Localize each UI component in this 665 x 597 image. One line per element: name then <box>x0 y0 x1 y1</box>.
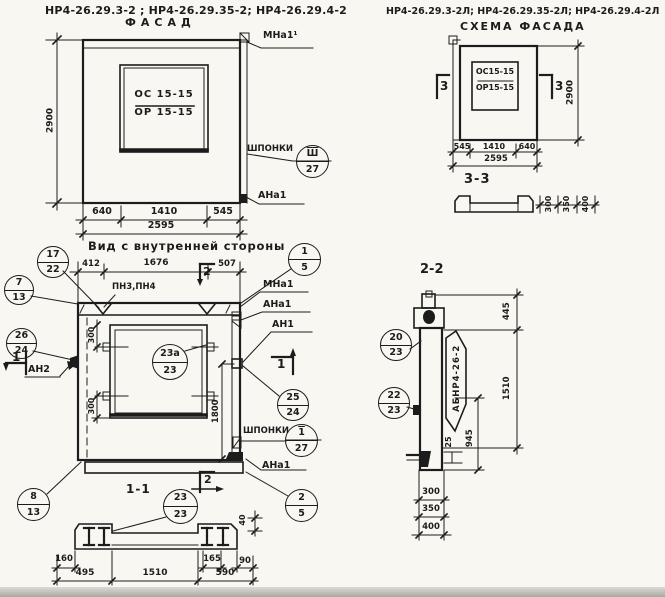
callout-top: 20 <box>381 330 411 346</box>
schema-window-mark-top: ОС15-15 <box>471 68 519 76</box>
s22-dim-300: 300 <box>418 488 444 497</box>
s11-dim-495: 495 <box>71 569 99 578</box>
inner-dim-412: 412 <box>78 260 104 269</box>
callout-top: 17 <box>38 247 68 263</box>
scan-edge-band <box>0 587 665 597</box>
callout-bottom: 23 <box>381 346 411 361</box>
schema-marker-3-left: 3 <box>440 80 448 92</box>
facade-label-ana1: АНа1 <box>258 191 286 201</box>
s22-callout-22-23: 22 23 <box>378 387 410 419</box>
schema-window-mark-bottom: ОР15-15 <box>471 84 519 92</box>
s22-dim-1510: 1510 <box>503 371 512 405</box>
inner-callout-2-5: 2 5 <box>285 489 318 522</box>
callout-top: 23а <box>153 345 187 363</box>
callout-top: 8 <box>18 489 49 505</box>
schema-drawing <box>437 36 599 213</box>
facade-label-mna1: МНа1¹ <box>263 31 298 41</box>
callout-bottom: 24 <box>278 406 308 421</box>
s22-dim-400: 400 <box>418 523 444 532</box>
title-facade: ФАСАД <box>125 17 196 28</box>
inner-dim-300-bottom: 300 <box>88 389 96 423</box>
inner-callout-17-22: 17 22 <box>37 246 69 278</box>
s33-dim-400: 400 <box>582 187 590 221</box>
inner-label-pn: ПН3,ПН4 <box>112 283 156 292</box>
facade-dim-height: 2900 <box>47 104 56 138</box>
title-section-3-3: 3-3 <box>464 173 491 186</box>
s22-dim-350: 350 <box>418 505 444 514</box>
s11-dim-40: 40 <box>239 503 247 537</box>
inner-callout-23a-23: 23а 23 <box>152 344 188 380</box>
inner-callout-26-24: 26 24 <box>6 328 37 359</box>
s22-dim-945: 945 <box>466 421 475 455</box>
callout-bottom: 5 <box>289 260 320 275</box>
facade-dim-total: 2595 <box>143 221 179 231</box>
callout-bottom: 13 <box>5 291 33 305</box>
inner-dim-1800: 1800 <box>212 394 221 428</box>
blueprint-sheet: НР4-26.29.3-2 ; НР4-26.29.35-2; НР4-26.2… <box>0 0 665 597</box>
schema-dim-640: 640 <box>516 143 538 151</box>
callout-bottom: 27 <box>286 441 317 456</box>
inner-label-ana1: АНа1 <box>263 300 291 310</box>
callout-top: 1 <box>286 425 317 441</box>
schema-dim-1410: 1410 <box>479 143 509 151</box>
facade-callout-shponki: Ш 27 <box>296 145 329 178</box>
facade-dim-640: 640 <box>87 207 117 217</box>
s22-flag-mark: АБНР4-26-2 <box>453 335 462 421</box>
s33-dim-350: 350 <box>563 187 571 221</box>
inner-dim-1676: 1676 <box>139 259 173 268</box>
callout-bottom: 23 <box>379 404 409 419</box>
s11-dim-1510: 1510 <box>138 569 172 578</box>
s11-dim-165: 165 <box>200 555 224 564</box>
title-schema: СХЕМА ФАСАДА <box>460 21 586 32</box>
callout-top: Ш <box>297 146 328 162</box>
inner-dim-300-top: 300 <box>88 318 96 352</box>
inner-callout-25-24: 25 24 <box>277 389 309 421</box>
callout-bottom: 5 <box>286 506 317 521</box>
inner-marker-2-bottom: 2 <box>204 474 212 485</box>
inner-callout-shponki: 1 27 <box>285 424 318 457</box>
schema-dim-height: 2900 <box>567 76 576 110</box>
schema-dim-total: 2595 <box>480 155 512 164</box>
callout-top: 23 <box>164 490 197 507</box>
s11-callout-23-23: 23 23 <box>163 489 198 524</box>
title-section-1-1: 1-1 <box>126 483 151 495</box>
inner-marker-2-top: 2 <box>203 266 211 277</box>
callout-top: 26 <box>7 329 36 344</box>
s11-dim-590: 590 <box>211 569 239 578</box>
facade-window-mark-top: ОС 15-15 <box>134 90 194 100</box>
s22-dim-445: 445 <box>503 294 512 328</box>
callout-top: 25 <box>278 390 308 406</box>
callout-bottom: 13 <box>18 505 49 520</box>
inner-label-an2: АН2 <box>28 365 50 375</box>
callout-top: 7 <box>5 276 33 291</box>
callout-bottom: 23 <box>153 363 187 380</box>
inner-label-shponki: ШПОНКИ <box>243 427 289 436</box>
inner-dim-507: 507 <box>214 260 240 269</box>
callout-bottom: 22 <box>38 263 68 278</box>
inner-callout-1-5: 1 5 <box>288 243 321 276</box>
callout-bottom: 24 <box>7 344 36 358</box>
inner-callout-8-13: 8 13 <box>17 488 50 521</box>
s33-dim-300: 300 <box>545 187 553 221</box>
title-marks-right: НР4-26.29.3-2Л; НР4-26.29.35-2Л; НР4-26.… <box>386 7 659 17</box>
inner-label-mna1: МНа1 <box>263 280 293 290</box>
callout-top: 2 <box>286 490 317 506</box>
inner-marker-1-right: 1 <box>277 358 285 370</box>
callout-bottom: 23 <box>164 507 197 523</box>
inner-label-an1: АН1 <box>272 320 294 330</box>
callout-top: 22 <box>379 388 409 404</box>
s22-dim-25: 25 <box>445 425 453 459</box>
s11-dim-90: 90 <box>235 557 255 566</box>
schema-marker-3-right: 3 <box>555 80 563 92</box>
schema-dim-545: 545 <box>451 143 473 151</box>
s22-callout-20-23: 20 23 <box>380 329 412 361</box>
title-section-2-2: 2-2 <box>420 263 444 276</box>
facade-window-mark-bottom: ОР 15-15 <box>134 108 194 118</box>
title-inner-view: Вид с внутренней стороны <box>88 241 285 253</box>
inner-callout-7-13: 7 13 <box>4 275 34 305</box>
facade-dim-1410: 1410 <box>146 207 182 217</box>
callout-top: 1 <box>289 244 320 260</box>
title-marks-left: НР4-26.29.3-2 ; НР4-26.29.35-2; НР4-26.2… <box>45 5 347 16</box>
facade-label-shponki: ШПОНКИ <box>247 145 293 154</box>
facade-dim-545: 545 <box>208 207 238 217</box>
inner-label-ana1-bottom: АНа1 <box>262 461 290 471</box>
callout-bottom: 27 <box>297 162 328 177</box>
s11-dim-160: 160 <box>52 555 76 564</box>
